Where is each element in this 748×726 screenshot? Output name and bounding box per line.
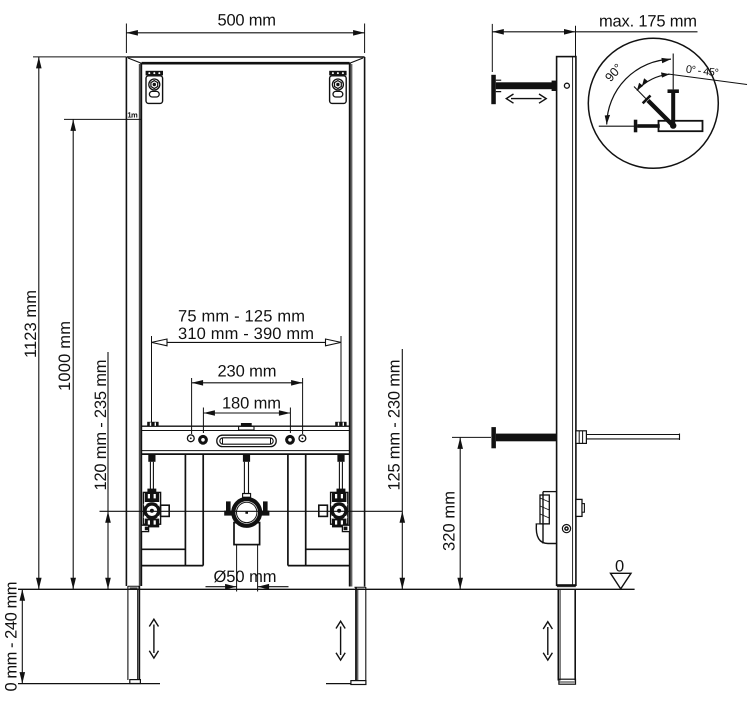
svg-text:125 mm - 230 mm: 125 mm - 230 mm xyxy=(386,360,404,491)
svg-text:180 mm: 180 mm xyxy=(222,394,281,412)
svg-text:75 mm - 125 mm: 75 mm - 125 mm xyxy=(178,307,305,325)
svg-text:310 mm - 390 mm: 310 mm - 390 mm xyxy=(178,325,314,343)
svg-text:500 mm: 500 mm xyxy=(218,12,277,30)
svg-text:1000 mm: 1000 mm xyxy=(56,321,74,391)
svg-text:0 mm - 240 mm: 0 mm - 240 mm xyxy=(3,582,21,692)
svg-text:1 m: 1 m xyxy=(127,111,138,120)
svg-text:1123 mm: 1123 mm xyxy=(22,290,40,358)
svg-text:max. 175 mm: max. 175 mm xyxy=(599,12,697,30)
svg-text:320 mm: 320 mm xyxy=(441,491,459,551)
svg-text:Ø50 mm: Ø50 mm xyxy=(214,568,277,586)
svg-text:230 mm: 230 mm xyxy=(218,363,277,381)
svg-text:120 mm - 235 mm: 120 mm - 235 mm xyxy=(92,360,110,491)
